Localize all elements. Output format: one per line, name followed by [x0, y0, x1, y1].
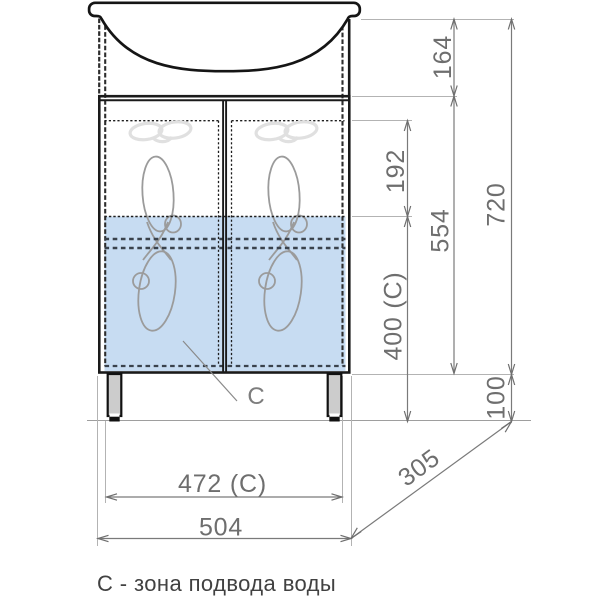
svg-text:400 (С): 400 (С)	[380, 272, 408, 361]
svg-text:504: 504	[199, 514, 243, 542]
svg-text:С: С	[247, 383, 264, 410]
svg-text:472 (С): 472 (С)	[178, 470, 267, 498]
svg-text:164: 164	[429, 35, 457, 79]
svg-text:554: 554	[427, 208, 455, 252]
svg-text:720: 720	[482, 182, 510, 226]
svg-text:С - зона подвода воды: С - зона подвода воды	[97, 571, 336, 596]
svg-text:192: 192	[382, 149, 410, 193]
svg-text:100: 100	[483, 375, 511, 419]
